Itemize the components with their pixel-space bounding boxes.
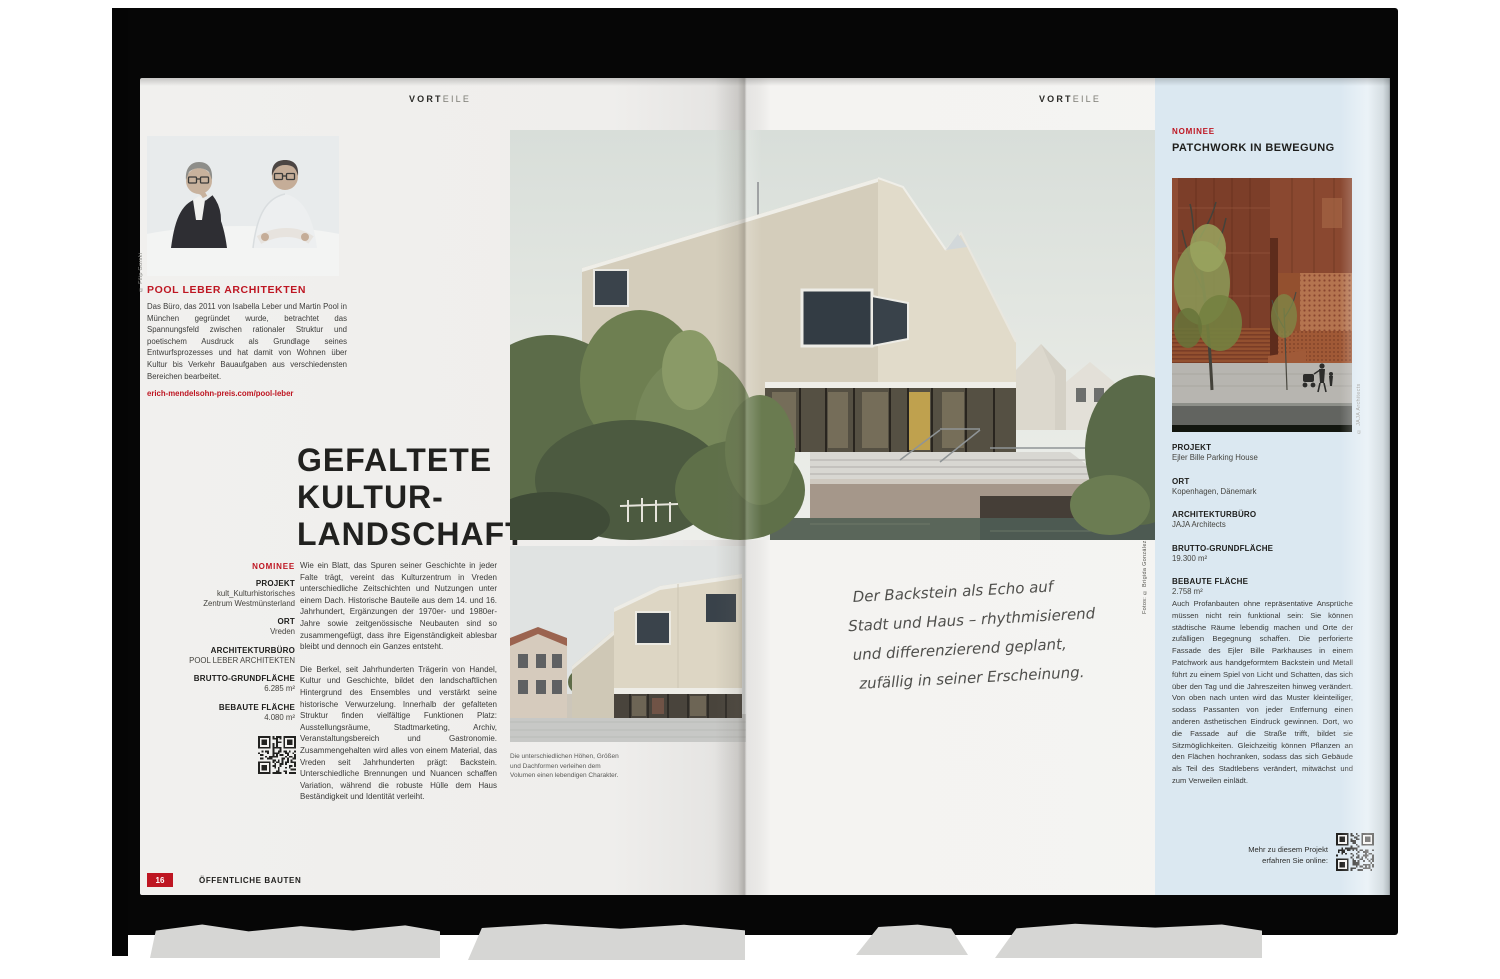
fact-ort: ORT Kopenhagen, Dänemark	[1172, 477, 1357, 497]
fact-brutto-grundflaeche: BRUTTO-GRUNDFLÄCHE 6.285 m²	[160, 674, 295, 694]
main-building-illustration	[510, 130, 1155, 540]
street-view-photo	[510, 546, 746, 742]
sidebar-body: Auch Profanbauten ohne repräsentative An…	[1172, 598, 1353, 787]
fact-brutto-grundflaeche: BRUTTO-GRUNDFLÄCHE 19.300 m²	[1172, 544, 1357, 564]
fact-architekturbuero: ARCHITEKTURBÜRO POOL LEBER ARCHITEKTEN	[160, 646, 295, 666]
magazine-spread: VORTEILE VORTEILE	[140, 78, 1390, 895]
fact-ort: ORT Vreden	[160, 617, 295, 637]
running-head-left: VORTEILE	[390, 94, 490, 104]
portrait-photo-credit: © Filip Gorski	[138, 206, 144, 292]
architects-portrait-illustration	[147, 136, 339, 276]
studio-heading: POOL LEBER ARCHITEKTEN	[147, 284, 347, 296]
book-spine-edge	[112, 8, 128, 956]
running-head-bold: VORT	[1039, 94, 1073, 104]
fact-bebaute-flaeche: BEBAUTE FLÄCHE 2.758 m²	[1172, 577, 1357, 597]
qr-hint-text: Mehr zu diesem Projekt erfahren Sie onli…	[1160, 845, 1328, 866]
page-number-badge: 16	[147, 873, 173, 887]
fact-projekt: PROJEKT Ejler Bille Parking House	[1172, 443, 1357, 463]
fact-architekturbuero: ARCHITEKTURBÜRO JAJA Architects	[1172, 510, 1357, 530]
architects-portrait-photo	[147, 136, 339, 276]
main-photo-credit: Fotos: © Brigida González	[1142, 456, 1148, 614]
project-facts-left: NOMINEE PROJEKT kult_Kulturhistorisches …	[160, 562, 295, 731]
nominee-badge: NOMINEE	[1172, 127, 1215, 136]
running-head-light: EILE	[1073, 94, 1101, 104]
screenshot-canvas: { "colors": { "accent_red": "#be1622", "…	[0, 0, 1500, 979]
page-top-shadow	[140, 78, 1390, 86]
running-head-bold: VORT	[409, 94, 443, 104]
qr-code	[258, 736, 296, 774]
handwritten-annotation: Der Backstein als Echo auf Stadt und Hau…	[852, 566, 1178, 699]
running-head-right: VORTEILE	[1020, 94, 1120, 104]
running-head-light: EILE	[443, 94, 471, 104]
article-paragraph: Wie ein Blatt, das Spuren seiner Geschic…	[300, 560, 497, 653]
footer-section-label: ÖFFENTLICHE BAUTEN	[199, 876, 301, 885]
fact-bebaute-flaeche: BEBAUTE FLÄCHE 4.080 m²	[160, 703, 295, 723]
project-facts-right: PROJEKT Ejler Bille Parking House ORT Ko…	[1172, 443, 1357, 606]
sidebar-title: PATCHWORK IN BEWEGUNG	[1172, 142, 1382, 154]
studio-description: Das Büro, das 2011 von Isabella Leber un…	[147, 301, 347, 382]
main-building-photo	[510, 130, 1155, 540]
qr-code	[1336, 833, 1374, 871]
fact-projekt: PROJEKT kult_Kulturhistorisches Zentrum …	[160, 579, 295, 608]
article-body: Wie ein Blatt, das Spuren seiner Geschic…	[300, 560, 497, 814]
street-view-illustration	[510, 546, 746, 742]
parking-photo-credit: © JAJA Architects	[1356, 346, 1362, 434]
nominee-badge: NOMINEE	[160, 562, 295, 571]
parking-house-photo	[1172, 178, 1352, 432]
article-paragraph: Die Berkel, seit Jahrhunderten Trägerin …	[300, 664, 497, 803]
studio-link: erich-mendelsohn-preis.com/pool-leber	[147, 389, 367, 398]
parking-house-illustration	[1172, 178, 1352, 432]
street-photo-caption: Die unterschiedlichen Höhen, Größen und …	[510, 752, 680, 781]
